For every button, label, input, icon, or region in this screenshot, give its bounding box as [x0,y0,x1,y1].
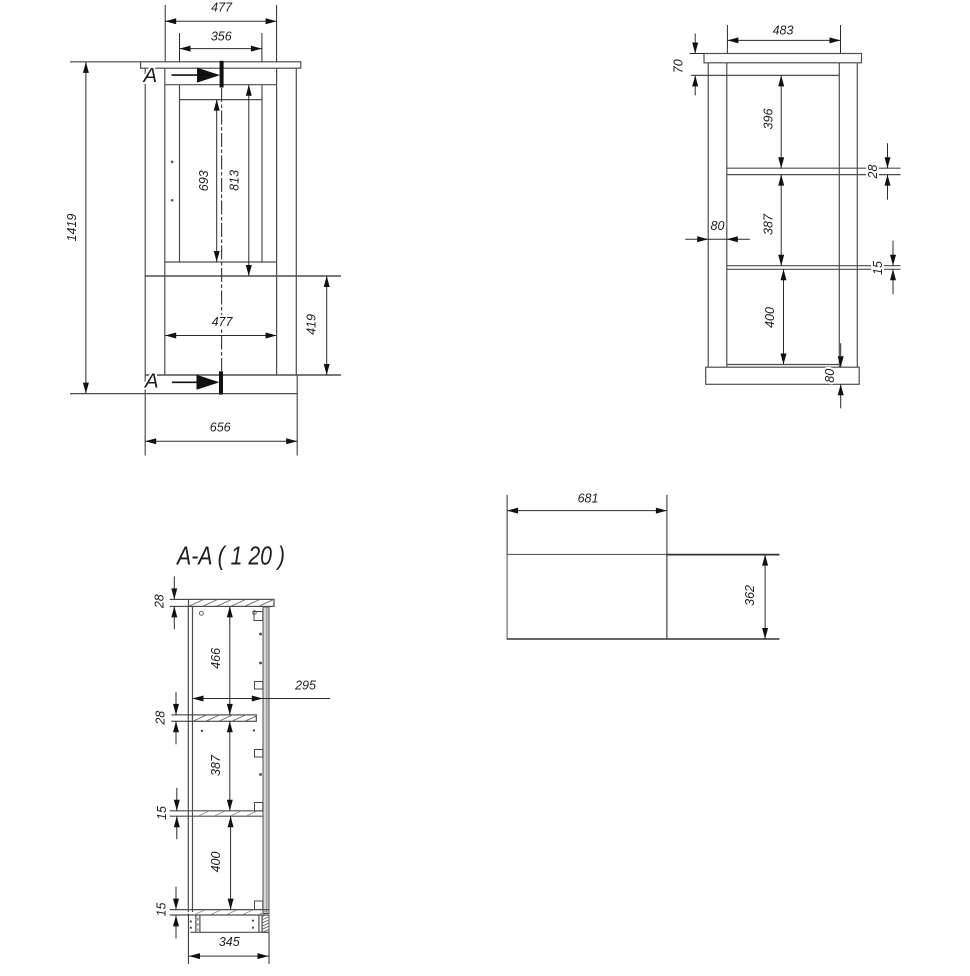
svg-text:80: 80 [823,369,837,383]
svg-text:400: 400 [209,852,223,873]
svg-text:1419: 1419 [65,214,79,242]
svg-text:70: 70 [671,59,685,73]
svg-text:387: 387 [209,754,223,776]
svg-text:477: 477 [211,0,233,14]
svg-text:28: 28 [866,165,880,180]
svg-text:396: 396 [761,109,775,130]
svg-text:362: 362 [743,585,757,606]
svg-text:15: 15 [871,261,885,275]
svg-text:28: 28 [153,594,167,609]
svg-text:813: 813 [228,170,242,191]
svg-text:295: 295 [294,678,316,692]
svg-text:681: 681 [578,491,599,505]
svg-text:387: 387 [761,213,775,235]
svg-text:483: 483 [773,23,794,37]
svg-text:A: A [143,370,159,393]
svg-text:477: 477 [212,315,234,329]
svg-text:15: 15 [154,903,168,917]
svg-text:656: 656 [210,420,231,434]
svg-text:80: 80 [711,219,725,233]
svg-text:693: 693 [197,170,211,191]
svg-text:A: A [142,64,158,87]
svg-text:400: 400 [763,307,777,328]
svg-text:345: 345 [219,935,240,949]
svg-text:356: 356 [211,30,232,44]
svg-text:15: 15 [155,806,169,820]
svg-text:466: 466 [209,648,223,669]
svg-text:28: 28 [153,711,167,726]
svg-text:A-A ( 1 20 ): A-A ( 1 20 ) [175,541,285,571]
svg-text:419: 419 [304,314,318,335]
